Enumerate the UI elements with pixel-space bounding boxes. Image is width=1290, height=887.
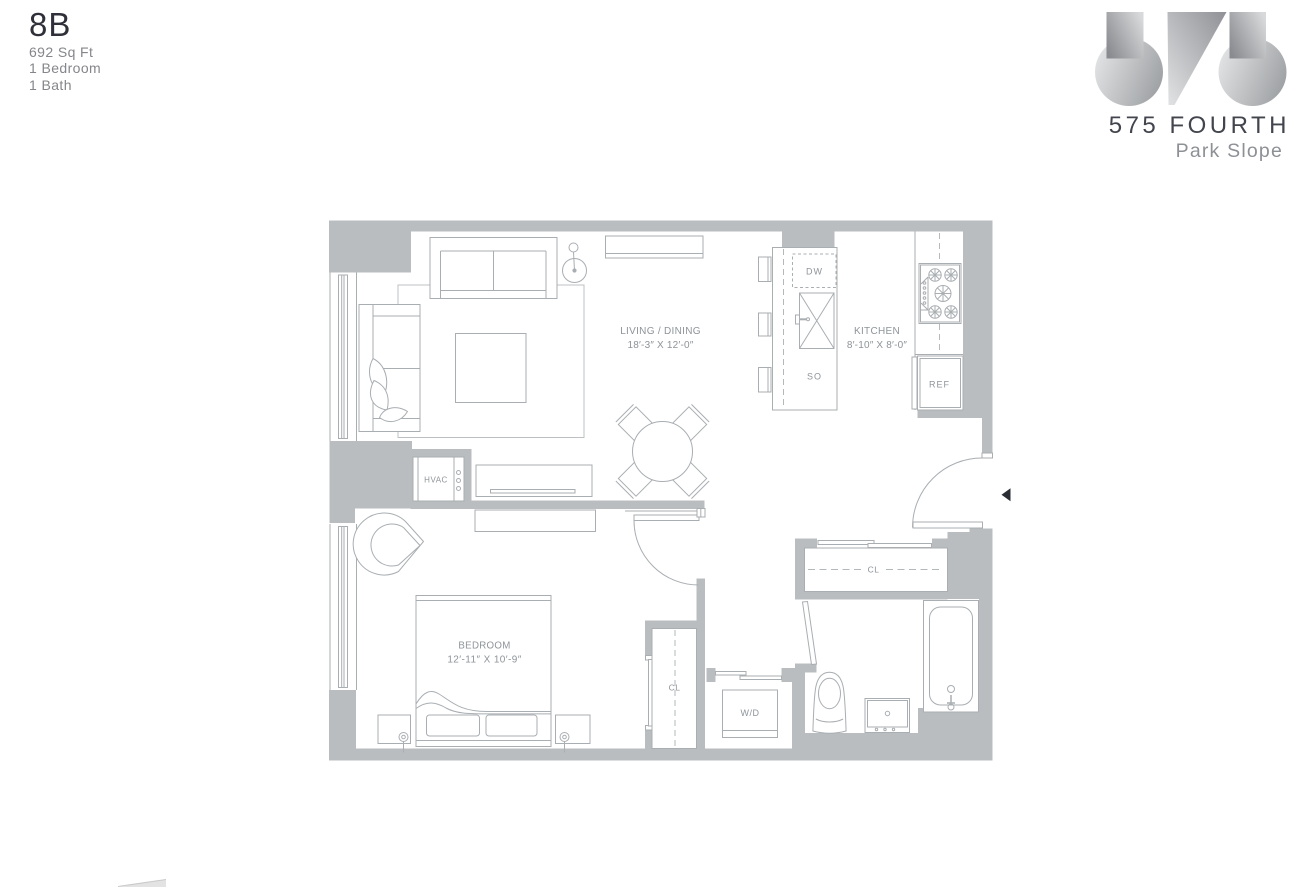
svg-text:Park Slope: Park Slope: [1176, 140, 1283, 162]
svg-text:DW: DW: [806, 267, 823, 277]
svg-text:REF: REF: [929, 380, 950, 390]
svg-text:CL: CL: [868, 565, 880, 575]
svg-text:8′-10″ X 8′-0″: 8′-10″ X 8′-0″: [847, 340, 908, 351]
svg-text:HVAC: HVAC: [424, 476, 448, 485]
svg-text:12′-11″ X 10′-9″: 12′-11″ X 10′-9″: [447, 655, 521, 666]
svg-text:SO: SO: [807, 372, 822, 382]
svg-text:W/D: W/D: [741, 708, 760, 718]
svg-text:575 FOURTH: 575 FOURTH: [1109, 112, 1290, 139]
svg-text:BEDROOM: BEDROOM: [458, 641, 510, 652]
svg-text:LIVING / DINING: LIVING / DINING: [620, 326, 701, 337]
svg-text:KITCHEN: KITCHEN: [854, 326, 900, 337]
svg-text:18′-3″ X 12′-0″: 18′-3″ X 12′-0″: [627, 340, 693, 351]
svg-text:CL: CL: [669, 683, 681, 693]
